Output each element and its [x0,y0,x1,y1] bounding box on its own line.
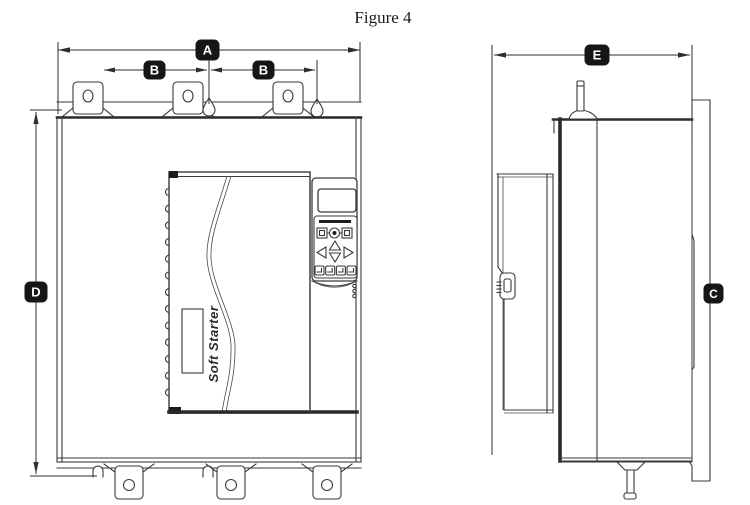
mounting-tab [62,82,114,117]
function-key [326,266,335,275]
bottom-mounting [57,464,361,499]
mounting-hole [83,90,93,102]
status-indicator-icons [317,228,352,238]
mounting-tab [206,464,256,499]
dimension-label-b-left: B [150,63,159,78]
mounting-hole [124,480,135,491]
run-indicator-icon [317,228,327,238]
mounting-hole [183,90,193,102]
keypad-slot-bar [319,220,351,223]
enclosure-body-side [553,119,692,462]
mounting-hole [226,480,237,491]
dimension-label-b-right: B [259,63,268,78]
function-key [347,266,356,275]
dimension-label-e: E [593,48,602,63]
drawing-svg: Figure 4 [0,0,750,505]
hinge-pin-top [169,171,178,178]
function-key [315,266,324,275]
function-key [336,266,345,275]
dimension-label-a: A [203,43,213,58]
keyhole-notch [93,466,103,477]
mounting-tab [104,464,154,499]
door-latch-clip [497,273,515,299]
mounting-tab [302,464,352,499]
front-view: Soft Starter [25,40,361,499]
dimension-label-c: C [709,287,718,301]
mounting-tab [262,82,314,117]
dimension-label-d: D [31,285,40,300]
bottom-fixing-pin [617,462,645,499]
door-side-profile [497,174,553,413]
top-mounting-tabs [62,82,314,117]
brand-label: Soft Starter [206,305,221,382]
rating-label-box [182,309,203,373]
mounting-hole [322,480,333,491]
figure-4-dimension-drawing: Figure 4 [0,0,750,505]
fault-indicator-icon [342,228,352,238]
figure-title: Figure 4 [354,8,412,27]
keypad-display [318,189,356,212]
side-view: E C [492,45,723,499]
mounting-hole [283,90,293,102]
dimension-c: C [704,284,723,303]
top-fixing-pin [569,81,597,119]
